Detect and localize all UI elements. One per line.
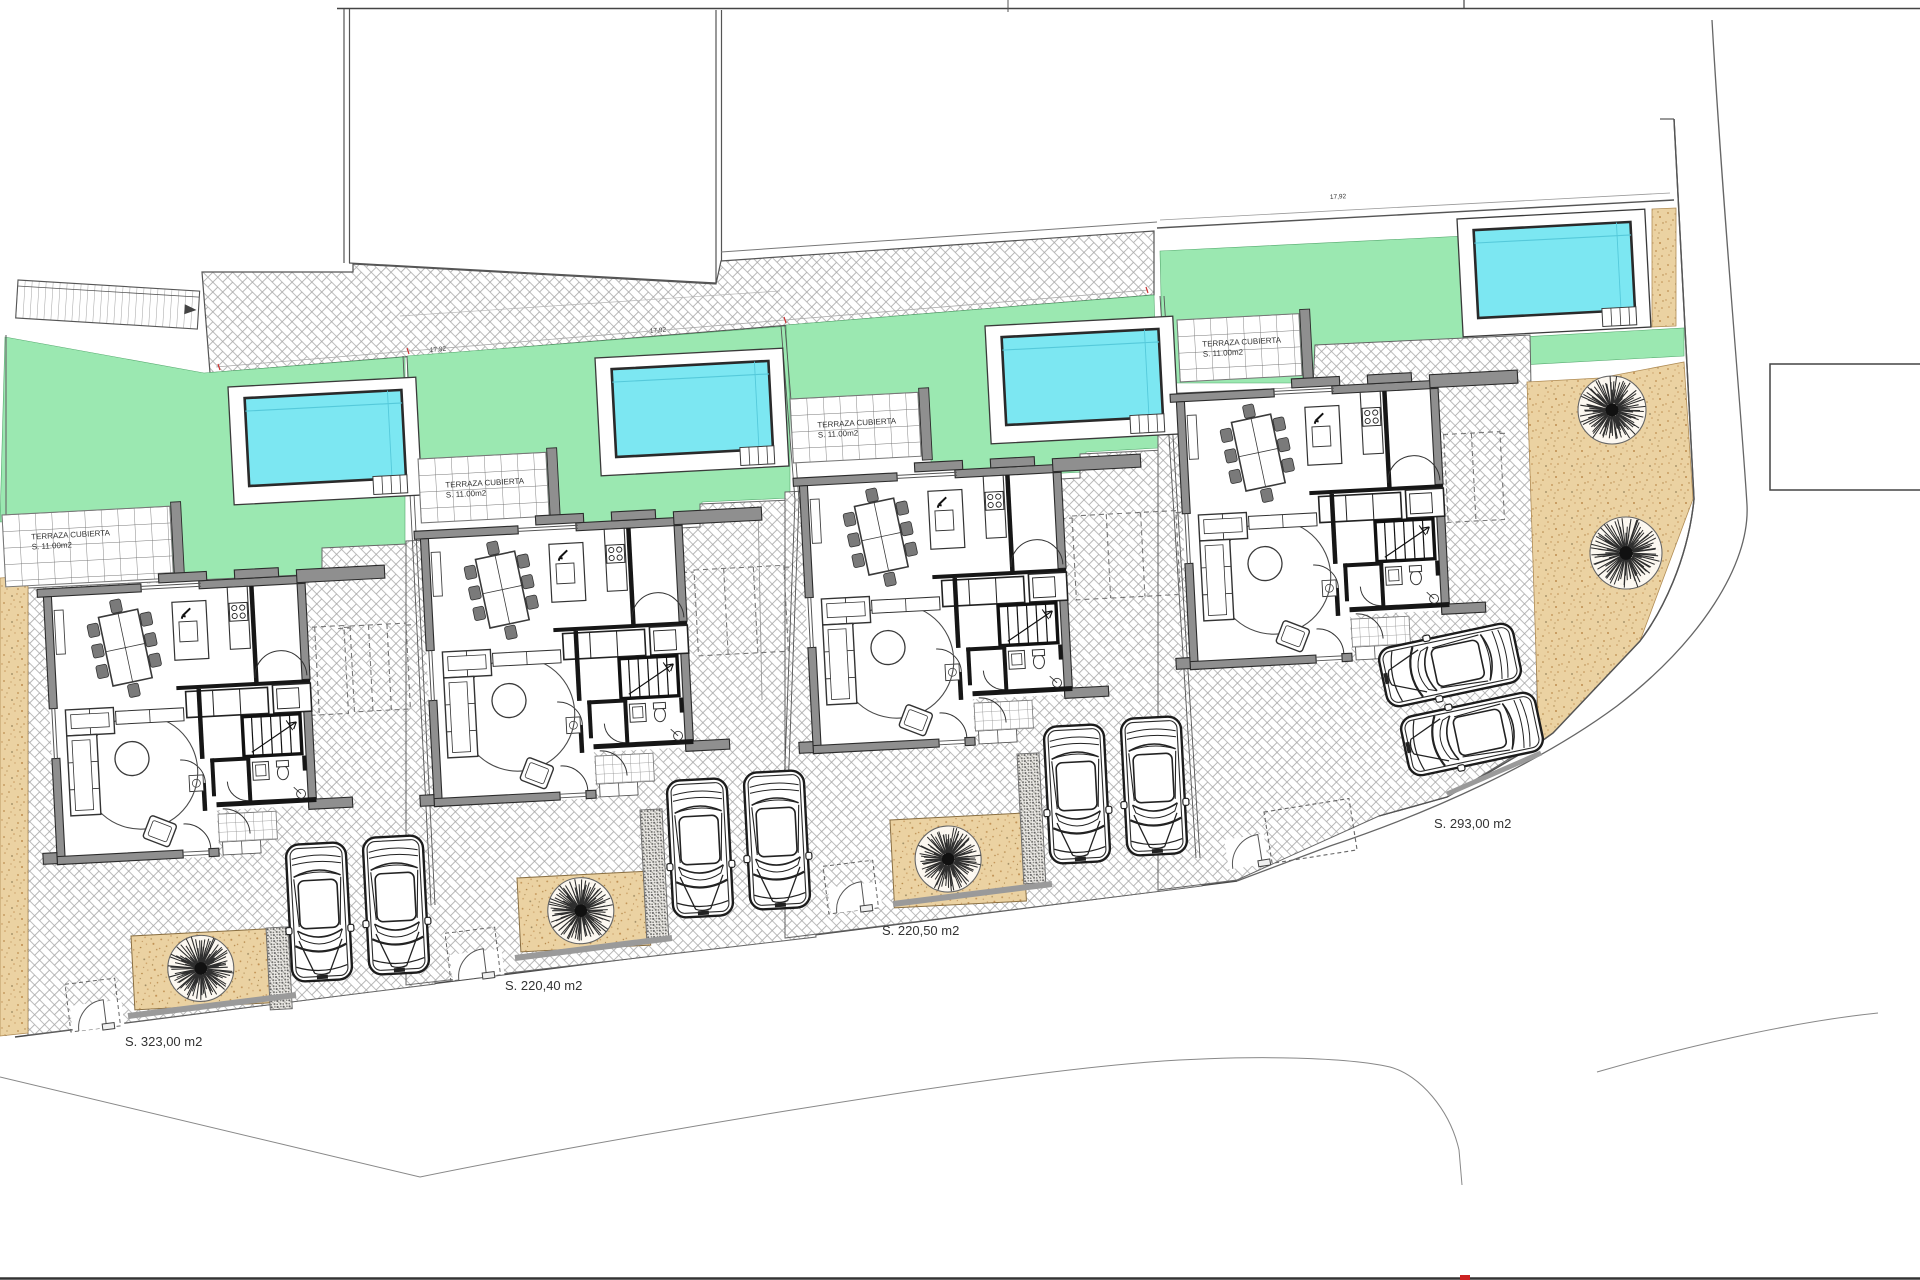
- svg-text:17,92: 17,92: [1330, 193, 1347, 201]
- svg-text:S. 293,00 m2: S. 293,00 m2: [1434, 816, 1511, 831]
- svg-text:S. 220,50 m2: S. 220,50 m2: [882, 923, 959, 938]
- svg-text:17,92: 17,92: [430, 346, 447, 354]
- svg-text:S. 323,00 m2: S. 323,00 m2: [125, 1034, 202, 1049]
- svg-text:S. 220,40 m2: S. 220,40 m2: [505, 978, 582, 993]
